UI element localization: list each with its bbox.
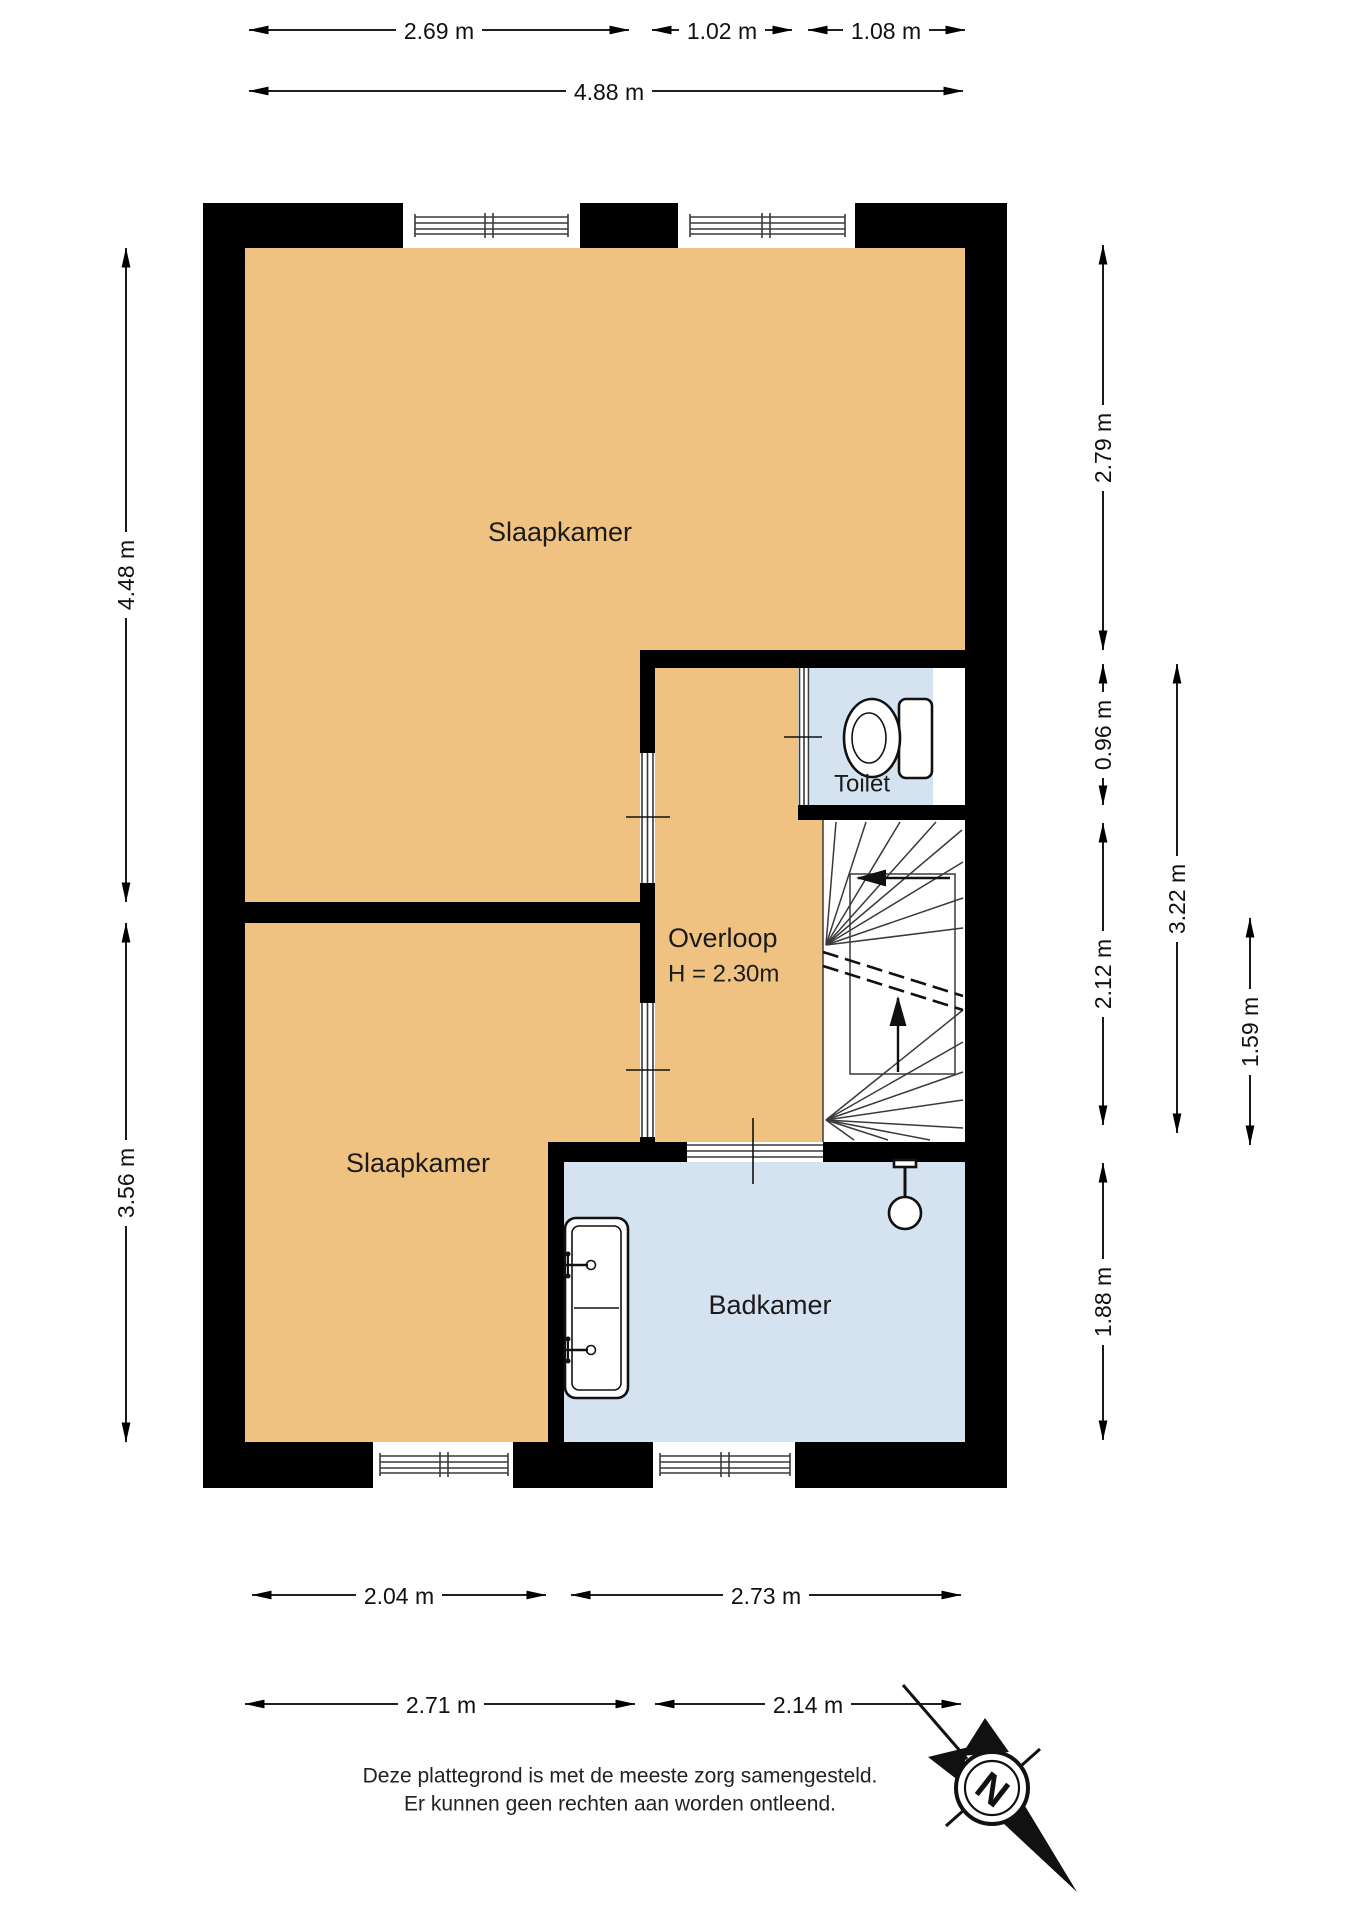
toilet-fixture-icon — [844, 699, 932, 778]
svg-text:2.73 m: 2.73 m — [731, 1583, 801, 1609]
floorplan-drawing: Slaapkamer Slaapkamer Overloop H = 2.30m… — [0, 0, 1358, 1920]
dim-top-2: 1.02 m — [652, 16, 792, 44]
svg-text:1.59 m: 1.59 m — [1237, 997, 1263, 1067]
svg-text:2.14 m: 2.14 m — [773, 1692, 843, 1718]
dim-bottom-1a: 2.04 m — [252, 1581, 546, 1609]
label-bathroom: Badkamer — [708, 1290, 831, 1320]
dim-right-col2: 3.22 m — [1163, 664, 1191, 1133]
svg-text:1.02 m: 1.02 m — [687, 18, 757, 44]
dim-right-2: 0.96 m — [1089, 664, 1117, 805]
svg-text:1.88 m: 1.88 m — [1090, 1267, 1116, 1337]
label-landing-height: H = 2.30m — [668, 961, 779, 988]
room-landing — [655, 668, 823, 1142]
dim-right-4: 1.88 m — [1089, 1163, 1117, 1440]
svg-text:2.79 m: 2.79 m — [1090, 413, 1116, 483]
svg-text:3.22 m: 3.22 m — [1164, 864, 1190, 934]
window-top-left — [403, 203, 580, 248]
dim-top-1: 2.69 m — [249, 16, 629, 44]
dim-top-total: 4.88 m — [249, 77, 963, 105]
svg-text:2.71 m: 2.71 m — [406, 1692, 476, 1718]
dim-right-1: 2.79 m — [1089, 245, 1117, 650]
disclaimer-line2: Er kunnen geen rechten aan worden ontlee… — [404, 1793, 836, 1816]
dim-left-2: 3.56 m — [112, 923, 140, 1442]
window-bottom-right — [653, 1442, 795, 1488]
label-bedroom-bottom: Slaapkamer — [346, 1148, 490, 1178]
label-toilet: Toilet — [834, 771, 890, 798]
svg-text:2.04 m: 2.04 m — [364, 1583, 434, 1609]
svg-text:1.08 m: 1.08 m — [851, 18, 921, 44]
svg-text:2.12 m: 2.12 m — [1090, 939, 1116, 1009]
dim-right-col3: 1.59 m — [1236, 918, 1264, 1145]
disclaimer-line1: Deze plattegrond is met de meeste zorg s… — [363, 1765, 878, 1788]
compass-north-icon: N — [903, 1685, 1077, 1892]
svg-text:0.96 m: 0.96 m — [1090, 700, 1116, 770]
svg-text:2.69 m: 2.69 m — [404, 18, 474, 44]
dim-bottom-2a: 2.71 m — [245, 1690, 635, 1718]
svg-text:3.56 m: 3.56 m — [113, 1148, 139, 1218]
staircase — [823, 820, 963, 1142]
dim-right-3: 2.12 m — [1089, 823, 1117, 1125]
dim-top-3: 1.08 m — [808, 16, 965, 44]
dim-left-1: 4.48 m — [112, 248, 140, 902]
window-bottom-left — [373, 1442, 513, 1488]
window-top-right — [678, 203, 855, 248]
label-landing: Overloop — [668, 923, 778, 953]
floorplan-page: Slaapkamer Slaapkamer Overloop H = 2.30m… — [0, 0, 1358, 1920]
svg-text:4.48 m: 4.48 m — [113, 540, 139, 610]
dim-bottom-1b: 2.73 m — [571, 1581, 961, 1609]
dim-bottom-2b: 2.14 m — [655, 1690, 961, 1718]
label-bedroom-top: Slaapkamer — [488, 517, 632, 547]
washbasin-fixture-icon — [565, 1218, 628, 1398]
svg-text:4.88 m: 4.88 m — [574, 79, 644, 105]
